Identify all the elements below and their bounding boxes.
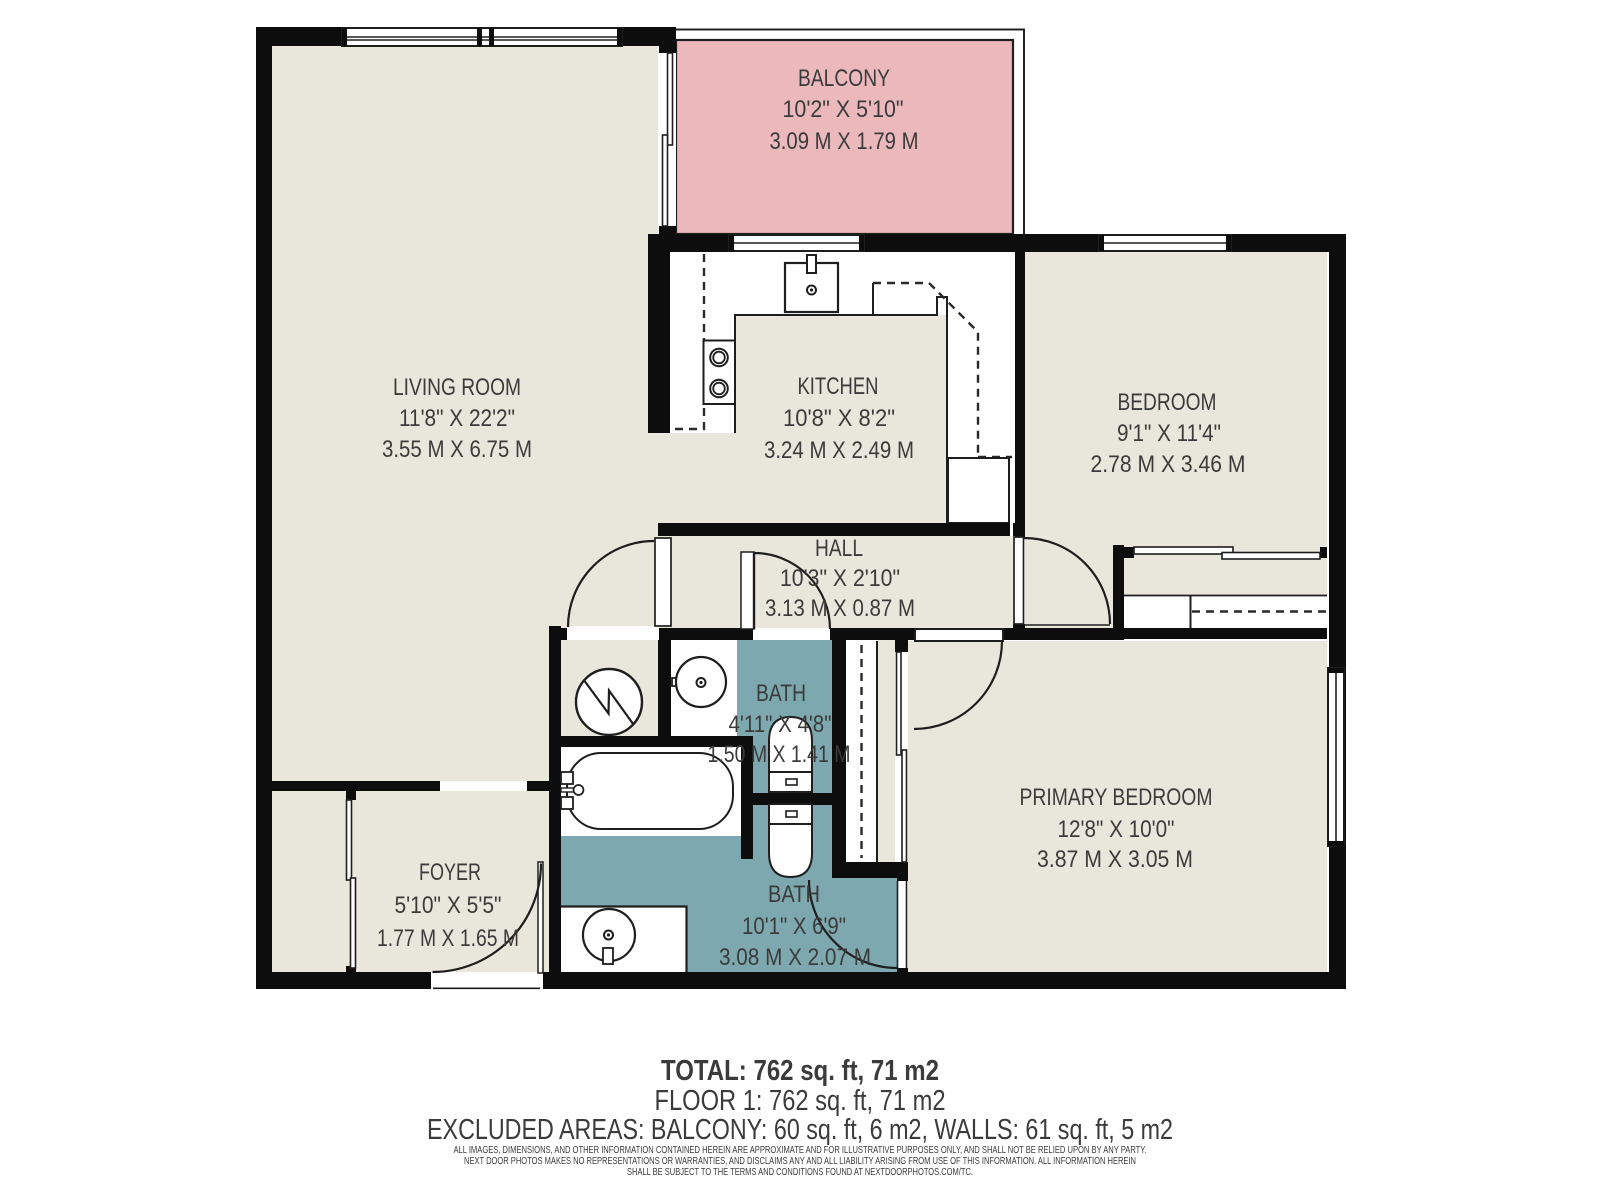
svg-text:4'11" X 4'8": 4'11" X 4'8" [729,711,832,738]
svg-text:FLOOR 1: 762 sq. ft, 71 m2: FLOOR 1: 762 sq. ft, 71 m2 [655,1085,946,1117]
svg-text:10'8" X 8'2": 10'8" X 8'2" [783,405,895,432]
svg-text:PRIMARY BEDROOM: PRIMARY BEDROOM [1020,784,1213,811]
svg-text:3.55 M X 6.75 M: 3.55 M X 6.75 M [382,436,532,463]
svg-text:2.78 M X 3.46 M: 2.78 M X 3.46 M [1091,451,1246,478]
svg-text:LIVING ROOM: LIVING ROOM [393,374,521,401]
svg-text:BEDROOM: BEDROOM [1118,389,1217,416]
svg-text:5'10" X 5'5": 5'10" X 5'5" [395,892,502,919]
svg-text:TOTAL: 762 sq. ft, 71 m2: TOTAL: 762 sq. ft, 71 m2 [661,1055,939,1087]
svg-text:12'8" X 10'0": 12'8" X 10'0" [1058,816,1175,843]
svg-text:NEXT DOOR PHOTOS MAKES NO REPR: NEXT DOOR PHOTOS MAKES NO REPRESENTATION… [464,1156,1136,1167]
svg-text:11'8" X 22'2": 11'8" X 22'2" [399,405,515,432]
svg-text:3.08 M X 2.07 M: 3.08 M X 2.07 M [719,944,871,971]
svg-text:3.24 M X 2.49 M: 3.24 M X 2.49 M [764,437,914,464]
svg-text:3.87 M X 3.05 M: 3.87 M X 3.05 M [1037,846,1193,873]
svg-text:10'2" X 5'10": 10'2" X 5'10" [783,96,904,123]
svg-text:SHALL BE SUBJECT TO THE TERMS: SHALL BE SUBJECT TO THE TERMS AND CONDIT… [627,1167,973,1178]
svg-text:10'3" X 2'10": 10'3" X 2'10" [780,565,900,592]
svg-text:ALL IMAGES, DIMENSIONS, AND OT: ALL IMAGES, DIMENSIONS, AND OTHER INFORM… [454,1145,1147,1156]
svg-text:3.13 M X 0.87 M: 3.13 M X 0.87 M [765,595,915,622]
svg-text:10'1" X 6'9": 10'1" X 6'9" [742,913,846,940]
svg-text:1.77 M X 1.65 M: 1.77 M X 1.65 M [377,925,519,952]
svg-text:FOYER: FOYER [419,859,481,886]
svg-text:KITCHEN: KITCHEN [798,373,879,400]
svg-text:3.09 M X 1.79 M: 3.09 M X 1.79 M [770,128,919,155]
svg-text:BATH: BATH [768,881,820,908]
svg-text:EXCLUDED AREAS: BALCONY: 60 sq: EXCLUDED AREAS: BALCONY: 60 sq. ft, 6 m2… [427,1114,1173,1146]
svg-text:HALL: HALL [815,535,863,562]
svg-text:9'1" X 11'4": 9'1" X 11'4" [1117,420,1221,447]
svg-text:1.50 M X 1.41 M: 1.50 M X 1.41 M [708,741,851,768]
svg-text:BATH: BATH [756,680,806,707]
svg-text:BALCONY: BALCONY [798,65,890,92]
